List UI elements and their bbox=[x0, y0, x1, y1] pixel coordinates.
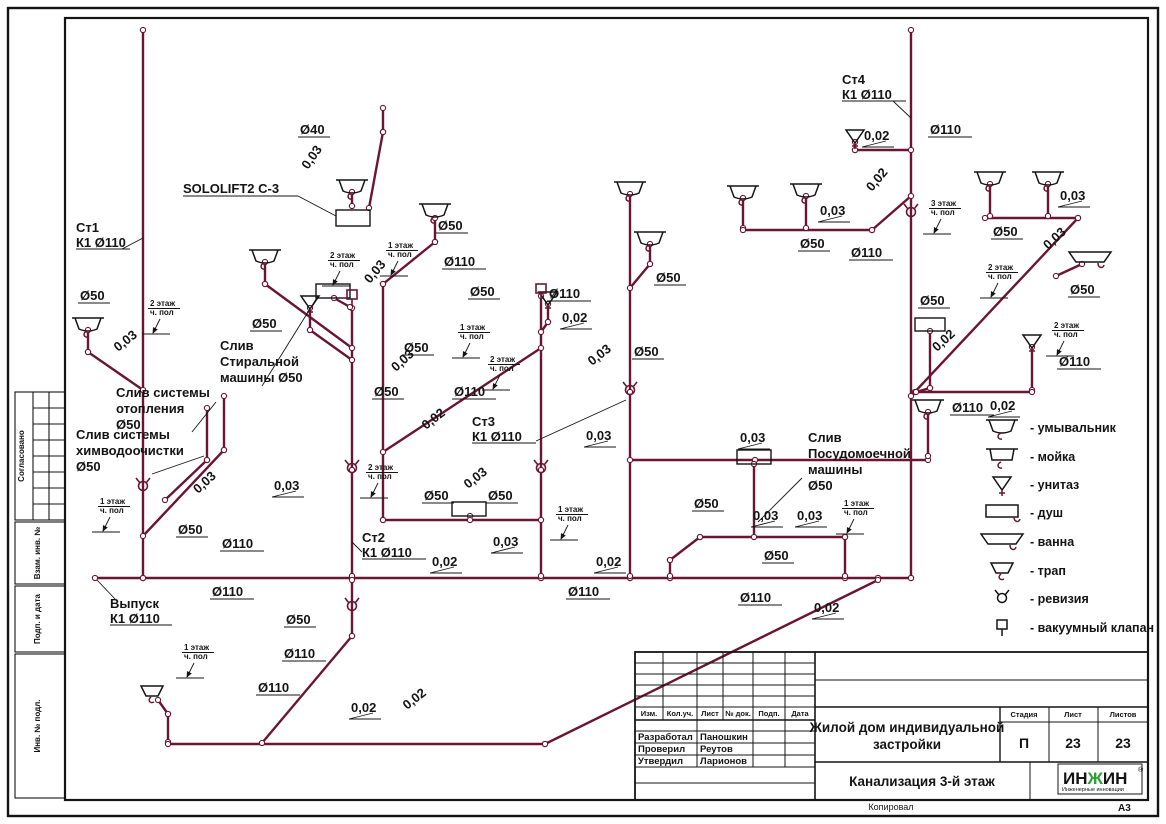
svg-text:ч. пол: ч. пол bbox=[490, 364, 514, 373]
svg-text:ч. пол: ч. пол bbox=[100, 506, 124, 515]
svg-text:0,03: 0,03 bbox=[111, 327, 140, 354]
drawing-sheet: Согласовано Взам. инв. № Подп. и дата Ин… bbox=[0, 0, 1166, 824]
svg-text:Ø50: Ø50 bbox=[438, 218, 463, 233]
svg-text:Ø50: Ø50 bbox=[488, 488, 513, 503]
svg-text:К1 Ø110: К1 Ø110 bbox=[472, 429, 522, 444]
bath-icon bbox=[981, 534, 1023, 549]
svg-text:2 этаж: 2 этаж bbox=[368, 463, 393, 472]
legend: - умывальник - мойка - унитаз - душ - ва… bbox=[981, 420, 1154, 636]
svg-text:Ø110: Ø110 bbox=[851, 245, 882, 260]
svg-text:0,03: 0,03 bbox=[298, 142, 325, 171]
svg-text:0,02: 0,02 bbox=[990, 398, 1015, 413]
project-title-2: застройки bbox=[873, 737, 941, 752]
svg-text:1 этаж: 1 этаж bbox=[388, 241, 413, 250]
svg-text:Ø50: Ø50 bbox=[76, 459, 101, 474]
svg-text:Ø110: Ø110 bbox=[284, 646, 315, 661]
svg-text:Ст2: Ст2 bbox=[362, 530, 385, 545]
svg-text:Ст4: Ст4 bbox=[842, 72, 866, 87]
washbasin-icon bbox=[986, 420, 1018, 439]
svg-text:3 этаж: 3 этаж bbox=[931, 199, 956, 208]
shower-icon bbox=[986, 505, 1020, 521]
col-data: Дата bbox=[791, 709, 809, 718]
svg-text:ч. пол: ч. пол bbox=[150, 308, 174, 317]
svg-text:Ø50: Ø50 bbox=[694, 496, 719, 511]
svg-text:Слив: Слив bbox=[220, 338, 254, 353]
svg-text:0,03: 0,03 bbox=[585, 341, 614, 368]
svg-text:ч. пол: ч. пол bbox=[368, 472, 392, 481]
svg-text:0,03: 0,03 bbox=[1060, 188, 1085, 203]
svg-text:Ø110: Ø110 bbox=[258, 680, 289, 695]
svg-text:2 этаж: 2 этаж bbox=[988, 263, 1013, 272]
svg-text:Посудомоечной: Посудомоечной bbox=[808, 446, 911, 461]
svg-text:Ø110: Ø110 bbox=[568, 584, 599, 599]
svg-text:Ø50: Ø50 bbox=[252, 316, 277, 331]
project-title: Жилой дом индивидуальной bbox=[809, 720, 1005, 735]
svg-text:Ø110: Ø110 bbox=[740, 590, 771, 605]
svg-text:Выпуск: Выпуск bbox=[110, 596, 159, 611]
col-izm: Изм. bbox=[641, 709, 658, 718]
svg-text:ч. пол: ч. пол bbox=[330, 260, 354, 269]
svg-text:1 этаж: 1 этаж bbox=[184, 643, 209, 652]
col-doc: № док. bbox=[725, 709, 751, 718]
legend-item-label: - унитаз bbox=[1030, 478, 1079, 492]
svg-text:ч. пол: ч. пол bbox=[558, 514, 582, 523]
sink-icon bbox=[986, 449, 1018, 468]
svg-text:машины Ø50: машины Ø50 bbox=[220, 370, 303, 385]
svg-text:К1 Ø110: К1 Ø110 bbox=[110, 611, 160, 626]
logo: ИНЖИН bbox=[1063, 769, 1127, 788]
svg-text:Ø50: Ø50 bbox=[800, 236, 825, 251]
sheets-header: Листов bbox=[1110, 710, 1137, 719]
svg-text:0,03: 0,03 bbox=[461, 464, 490, 491]
svg-text:Ø50: Ø50 bbox=[656, 270, 681, 285]
svg-text:0,03: 0,03 bbox=[493, 534, 518, 549]
svg-text:Слив: Слив bbox=[808, 430, 842, 445]
svg-text:ч. пол: ч. пол bbox=[931, 208, 955, 217]
legend-item-label: - мойка bbox=[1030, 450, 1076, 464]
svg-text:Ст1: Ст1 bbox=[76, 220, 99, 235]
svg-text:ч. пол: ч. пол bbox=[988, 272, 1012, 281]
role-developed: Разработал bbox=[638, 732, 693, 743]
col-podp: Подп. bbox=[758, 709, 779, 718]
svg-text:Ø110: Ø110 bbox=[549, 286, 580, 301]
svg-text:ч. пол: ч. пол bbox=[460, 332, 484, 341]
svg-text:ч. пол: ч. пол bbox=[184, 652, 208, 661]
svg-text:0,03: 0,03 bbox=[753, 508, 778, 523]
revision-icon bbox=[995, 590, 1009, 603]
svg-text:0,03: 0,03 bbox=[586, 428, 611, 443]
svg-text:Ø50: Ø50 bbox=[424, 488, 449, 503]
svg-text:1 этаж: 1 этаж bbox=[558, 505, 583, 514]
svg-text:Ø50: Ø50 bbox=[808, 478, 833, 493]
svg-text:Ø110: Ø110 bbox=[222, 536, 253, 551]
svg-text:Ø50: Ø50 bbox=[286, 612, 311, 627]
svg-text:Ø50: Ø50 bbox=[993, 224, 1018, 239]
legend-item-label: - ревизия bbox=[1030, 592, 1089, 606]
svg-text:0,02: 0,02 bbox=[596, 554, 621, 569]
svg-text:Ø110: Ø110 bbox=[212, 584, 243, 599]
svg-text:отопления: отопления bbox=[116, 401, 184, 416]
svg-text:химводоочистки: химводоочистки bbox=[76, 443, 184, 458]
role-approved: Утвердил bbox=[638, 756, 683, 767]
legend-item-label: - вакуумный клапан bbox=[1030, 621, 1154, 635]
svg-text:Ø50: Ø50 bbox=[470, 284, 495, 299]
svg-text:ч. пол: ч. пол bbox=[1054, 330, 1078, 339]
svg-text:Ø50: Ø50 bbox=[80, 288, 105, 303]
svg-text:0,03: 0,03 bbox=[797, 508, 822, 523]
format-label: А3 bbox=[1118, 803, 1131, 814]
svg-text:Ø50: Ø50 bbox=[374, 384, 399, 399]
svg-text:2 этаж: 2 этаж bbox=[490, 355, 515, 364]
svg-text:SOLOLIFT2 C-3: SOLOLIFT2 C-3 bbox=[183, 181, 279, 196]
legend-item-label: - трап bbox=[1030, 564, 1066, 578]
svg-text:Ø50: Ø50 bbox=[920, 293, 945, 308]
svg-text:0,03: 0,03 bbox=[1040, 224, 1069, 252]
stage-header: Стадия bbox=[1010, 710, 1037, 719]
col-list: Лист bbox=[701, 709, 719, 718]
role-checked: Проверил bbox=[638, 744, 685, 755]
svg-text:Ø50: Ø50 bbox=[178, 522, 203, 537]
logo-subtitle: Инженерные инновации bbox=[1062, 787, 1124, 793]
drawing-canvas: Согласовано Взам. инв. № Подп. и дата Ин… bbox=[0, 0, 1166, 824]
name-approved: Ларионов bbox=[700, 756, 747, 767]
svg-text:Ø50: Ø50 bbox=[634, 344, 659, 359]
svg-text:Ø110: Ø110 bbox=[952, 400, 983, 415]
svg-text:0,02: 0,02 bbox=[419, 405, 448, 432]
svg-text:К1 Ø110: К1 Ø110 bbox=[842, 87, 892, 102]
svg-text:1 этаж: 1 этаж bbox=[460, 323, 485, 332]
fixtures bbox=[72, 130, 1111, 703]
logo-reg: ® bbox=[1138, 766, 1144, 774]
name-checked: Реутов bbox=[700, 744, 733, 755]
svg-text:0,02: 0,02 bbox=[400, 685, 429, 712]
legend-item-label: - душ bbox=[1030, 506, 1063, 520]
svg-text:ч. пол: ч. пол bbox=[844, 508, 868, 517]
svg-text:0,02: 0,02 bbox=[863, 165, 891, 194]
svg-text:1 этаж: 1 этаж bbox=[100, 497, 125, 506]
svg-text:2 этаж: 2 этаж bbox=[150, 299, 175, 308]
name-developed: Паношкин bbox=[700, 732, 748, 743]
svg-text:Ø40: Ø40 bbox=[300, 122, 325, 137]
svg-text:0,02: 0,02 bbox=[814, 600, 839, 615]
svg-text:Ø50: Ø50 bbox=[764, 548, 789, 563]
col-kol: Кол.уч. bbox=[667, 709, 693, 718]
svg-text:Слив системы: Слив системы bbox=[116, 385, 210, 400]
drawing-title: Канализация 3-й этаж bbox=[849, 774, 995, 789]
svg-text:0,02: 0,02 bbox=[864, 128, 889, 143]
svg-text:Ст3: Ст3 bbox=[472, 414, 495, 429]
svg-text:Ø50: Ø50 bbox=[1070, 282, 1095, 297]
podp-label: Подп. и дата bbox=[33, 593, 42, 643]
soglasovano-label: Согласовано bbox=[17, 430, 26, 482]
svg-text:ч. пол: ч. пол bbox=[388, 250, 412, 259]
svg-text:0,02: 0,02 bbox=[562, 310, 587, 325]
legend-item-label: - умывальник bbox=[1030, 421, 1117, 435]
svg-text:2 этаж: 2 этаж bbox=[330, 251, 355, 260]
svg-text:Слив системы: Слив системы bbox=[76, 427, 170, 442]
svg-text:0,03: 0,03 bbox=[740, 430, 765, 445]
margin-labels: Согласовано Взам. инв. № Подп. и дата Ин… bbox=[17, 430, 42, 752]
floor-drain-icon bbox=[991, 563, 1013, 580]
svg-text:Стиральной: Стиральной bbox=[220, 354, 299, 369]
sheet-value: 23 bbox=[1065, 735, 1081, 751]
kopiroval-label: Копировал bbox=[868, 802, 913, 812]
inv-label: Инв. № подл. bbox=[33, 699, 42, 752]
svg-text:Ø110: Ø110 bbox=[454, 384, 485, 399]
svg-text:К1 Ø110: К1 Ø110 bbox=[76, 235, 126, 250]
sheet-header: Лист bbox=[1064, 710, 1082, 719]
svg-text:0,03: 0,03 bbox=[820, 203, 845, 218]
sheets-value: 23 bbox=[1115, 735, 1131, 751]
svg-text:Ø110: Ø110 bbox=[930, 122, 961, 137]
stage-value: П bbox=[1019, 735, 1029, 751]
svg-text:2 этаж: 2 этаж bbox=[1054, 321, 1079, 330]
svg-text:0,02: 0,02 bbox=[432, 554, 457, 569]
svg-text:1 этаж: 1 этаж bbox=[844, 499, 869, 508]
svg-text:машины: машины bbox=[808, 462, 862, 477]
svg-text:К1 Ø110: К1 Ø110 bbox=[362, 545, 412, 560]
svg-text:Ø110: Ø110 bbox=[444, 254, 475, 269]
vzam-label: Взам. инв. № bbox=[33, 527, 42, 580]
svg-text:0,03: 0,03 bbox=[274, 478, 299, 493]
svg-text:0,02: 0,02 bbox=[351, 700, 376, 715]
vacuum-valve-icon bbox=[997, 620, 1007, 636]
toilet-icon bbox=[993, 477, 1011, 496]
legend-item-label: - ванна bbox=[1030, 535, 1075, 549]
